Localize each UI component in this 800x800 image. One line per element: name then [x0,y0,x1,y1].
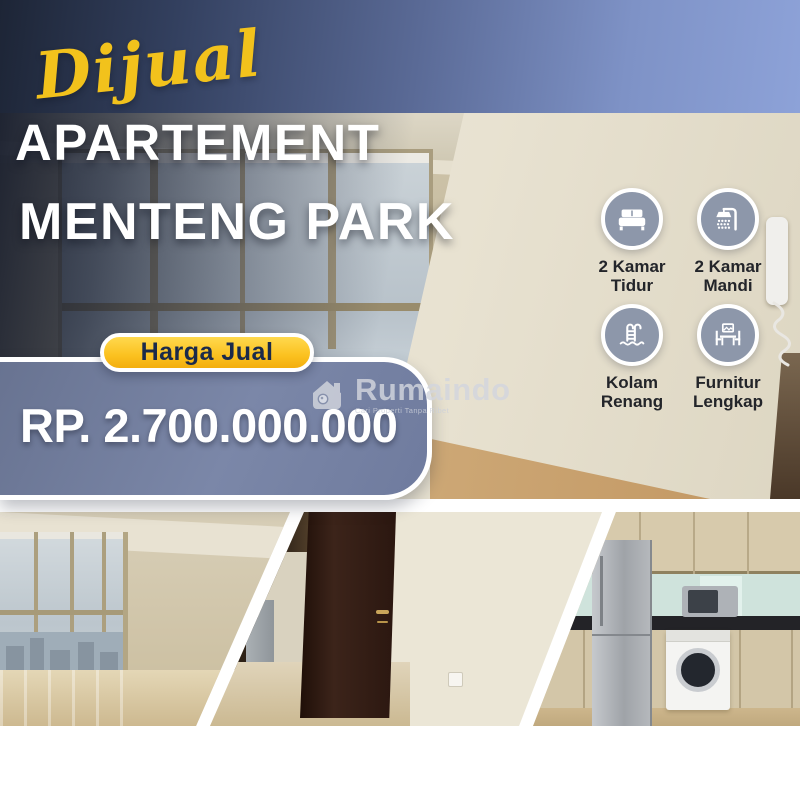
microwave-door [688,590,718,613]
feature-label: Kolam Renang [601,373,663,411]
brown-door [300,512,396,718]
property-flyer: Dijual APARTEMENT MENTENG PARK 2 Kamar T… [0,0,800,800]
kitchen-counter [533,616,800,630]
feature-label: 2 Kamar Tidur [598,257,665,295]
fridge-handle [600,556,603,626]
title-line-2: MENTENG PARK [19,196,455,248]
photo-strip [0,512,800,726]
feature-label: 2 Kamar Mandi [694,257,761,295]
fridge-door-split [592,634,652,636]
power-outlet [448,672,463,687]
bed-icon [601,188,663,250]
watermark: Rumaindo Cari Properti Tanpa Ribet [306,374,511,415]
price-label-pill: Harga Jual [100,333,314,372]
watermark-tagline: Cari Properti Tanpa Ribet [355,406,511,415]
living-window [0,532,128,684]
feature-bathrooms: 2 Kamar Mandi [694,188,761,304]
feature-label: Furnitur Lengkap [693,373,763,411]
pool-icon [601,304,663,366]
feature-bedrooms: 2 Kamar Tidur [598,188,665,304]
washer-door [676,648,720,692]
washer-control-panel [666,630,730,642]
feature-grid: 2 Kamar Tidur 2 Kamar Mand [584,188,776,420]
balcony-rail [0,610,123,615]
kitchen-floor [533,708,800,726]
floor-reflection [0,670,130,726]
feature-furniture: Furnitur Lengkap [693,304,763,420]
watermark-text: Rumaindo Cari Properti Tanpa Ribet [355,374,511,415]
door-handle [376,610,389,614]
footer-bar: Hubungi Elyoner Property 0812-1375-3151 … [0,726,800,800]
title-line-1: APARTEMENT [15,117,380,168]
shower-icon [697,188,759,250]
feature-pool: Kolam Renang [601,304,663,420]
watermark-brand: Rumaindo [355,374,511,405]
furniture-icon [697,304,759,366]
price-label: Harga Jual [141,338,274,367]
house-logo-icon [306,375,348,415]
